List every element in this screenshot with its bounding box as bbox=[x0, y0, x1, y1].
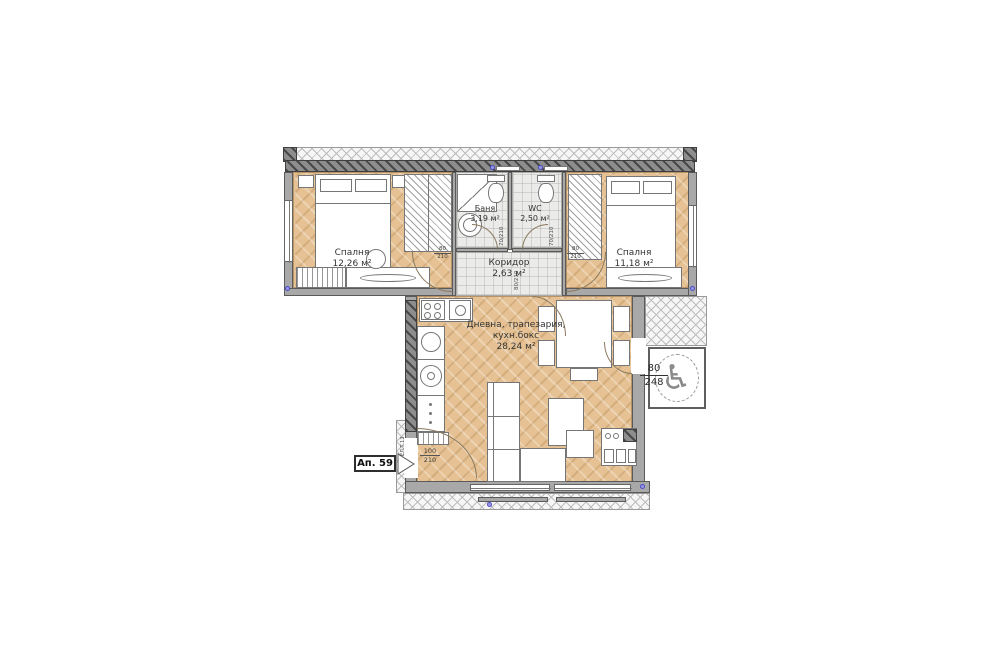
cooktop-icon bbox=[421, 300, 445, 320]
nightstand-icon bbox=[298, 175, 314, 188]
marker-dot bbox=[538, 165, 543, 170]
window-bedroom-left bbox=[284, 200, 293, 262]
burner bbox=[424, 303, 431, 310]
wall-bottom-right-section bbox=[566, 288, 697, 296]
apartment-badge: Ап. 59 bbox=[354, 455, 396, 472]
marker-dot bbox=[487, 502, 492, 507]
pillow-icon bbox=[320, 179, 352, 192]
shaft-dark-cell bbox=[623, 429, 637, 442]
knob-dot bbox=[429, 412, 432, 415]
oven-ring bbox=[455, 305, 466, 316]
toilet-icon bbox=[538, 183, 554, 203]
window-frame-line bbox=[289, 201, 290, 263]
burner bbox=[434, 312, 441, 319]
pillow-icon bbox=[355, 179, 387, 192]
toilet-tank bbox=[487, 175, 505, 182]
door-dimension-wc: 70/210 bbox=[549, 227, 555, 246]
room-label-bedroom-left: Спалня 12,26 м² bbox=[312, 248, 392, 270]
dimension-height: 210 bbox=[434, 254, 451, 261]
room-area: 3,19 м² bbox=[462, 214, 508, 224]
marker-dot bbox=[690, 286, 695, 291]
washer-drum bbox=[427, 372, 435, 380]
wardrobe-icon bbox=[404, 174, 452, 252]
towel-rail-icon bbox=[544, 166, 568, 171]
common-door-dimension: 80 248 bbox=[640, 362, 668, 389]
toilet-tank bbox=[537, 175, 555, 182]
wardrobe-divider bbox=[428, 175, 429, 251]
sofa-cushion-line bbox=[488, 449, 519, 450]
dimension-width: 100 bbox=[420, 447, 440, 456]
room-label-wc: WC 2,50 м² bbox=[510, 204, 560, 224]
chair-icon bbox=[613, 306, 630, 332]
dimension-width: 80 bbox=[567, 246, 584, 254]
arrow-right-icon bbox=[397, 452, 417, 476]
window-frame-line bbox=[555, 488, 632, 489]
room-label-bedroom-right: Спалня 11,18 м² bbox=[594, 248, 674, 270]
blanket-line bbox=[316, 203, 390, 204]
window-living-1 bbox=[470, 484, 550, 491]
sofa-back-line bbox=[493, 383, 494, 481]
room-label-corridor: Коридор 2,63 м² bbox=[469, 258, 549, 280]
door-dimension-entrance: 100 210 bbox=[420, 447, 440, 464]
dimension-height: 210 bbox=[420, 456, 440, 464]
railing-segment bbox=[556, 497, 626, 502]
knob-dot bbox=[429, 403, 432, 406]
window-living-2 bbox=[554, 484, 631, 491]
counter-divider bbox=[418, 359, 444, 360]
shaft-dot bbox=[605, 433, 611, 439]
burner bbox=[424, 312, 431, 319]
shaft-cell bbox=[604, 449, 614, 463]
burner bbox=[434, 303, 441, 310]
room-area: 12,26 м² bbox=[312, 259, 392, 270]
room-area: 2,63 м² bbox=[469, 269, 549, 280]
dresser-icon bbox=[606, 267, 682, 288]
knob-dot bbox=[429, 421, 432, 424]
room-name: Спалня bbox=[312, 248, 392, 259]
sofa-cushion-line bbox=[488, 416, 519, 417]
exterior-hatch-right bbox=[645, 296, 707, 346]
room-area: 2,50 м² bbox=[510, 214, 560, 224]
shaft-dot bbox=[613, 433, 619, 439]
room-name: Спалня bbox=[594, 248, 674, 259]
dimension-width: 80 bbox=[640, 362, 668, 376]
pillow-icon bbox=[611, 181, 640, 194]
shaft-box bbox=[601, 428, 637, 466]
blanket-line bbox=[607, 205, 675, 206]
room-name-line1: Дневна, трапезария, bbox=[456, 320, 576, 331]
shaft-cell bbox=[628, 449, 636, 463]
dimension-width: 80 bbox=[434, 246, 451, 254]
counter-divider bbox=[418, 395, 444, 396]
floor-plan: ♿ 80 248 80 210 80 210 70/210 70/210 80/… bbox=[0, 0, 1000, 667]
room-name-line2: кухн.бокс bbox=[456, 331, 576, 342]
marker-dot bbox=[490, 165, 495, 170]
wall-bath-left bbox=[452, 172, 456, 296]
sofa-chaise-icon bbox=[520, 448, 566, 482]
room-label-bath: Баня 3,19 м² bbox=[462, 204, 508, 224]
room-label-living: Дневна, трапезария, кухн.бокс 28,24 м² bbox=[456, 320, 576, 353]
room-area: 28,24 м² bbox=[456, 342, 576, 353]
dresser-handle bbox=[360, 274, 416, 282]
dimension-height: 248 bbox=[644, 377, 663, 388]
washer-icon bbox=[420, 365, 442, 387]
dimension-height: 210 bbox=[567, 254, 584, 261]
room-name: WC bbox=[510, 204, 560, 214]
chair-icon bbox=[570, 368, 598, 381]
door-dimension-bath: 70/210 bbox=[499, 227, 505, 246]
pillow-icon bbox=[643, 181, 672, 194]
toilet-icon bbox=[488, 183, 504, 203]
side-table-icon bbox=[566, 430, 594, 458]
kitchen-counter-left bbox=[417, 326, 445, 432]
door-dimension-bedroom-left: 80 210 bbox=[434, 246, 451, 261]
rug-icon bbox=[296, 267, 346, 288]
wall-bottom-left-section bbox=[284, 288, 456, 296]
kitchen-sink-icon bbox=[421, 332, 441, 352]
marker-dot bbox=[640, 484, 645, 489]
towel-rail-icon bbox=[496, 166, 520, 171]
window-frame-line bbox=[471, 488, 551, 489]
wall-living-left-hatched bbox=[405, 300, 417, 432]
window-bedroom-right bbox=[688, 205, 697, 267]
room-area: 11,18 м² bbox=[594, 259, 674, 270]
sofa-icon bbox=[487, 382, 520, 482]
marker-dot bbox=[285, 286, 290, 291]
oven-icon bbox=[449, 300, 471, 320]
door-dimension-bedroom-right: 80 210 bbox=[567, 246, 584, 261]
dresser-handle bbox=[618, 274, 672, 282]
room-name: Баня bbox=[462, 204, 508, 214]
room-name: Коридор bbox=[469, 258, 549, 269]
shaft-cell bbox=[616, 449, 626, 463]
window-frame-line bbox=[693, 206, 694, 268]
